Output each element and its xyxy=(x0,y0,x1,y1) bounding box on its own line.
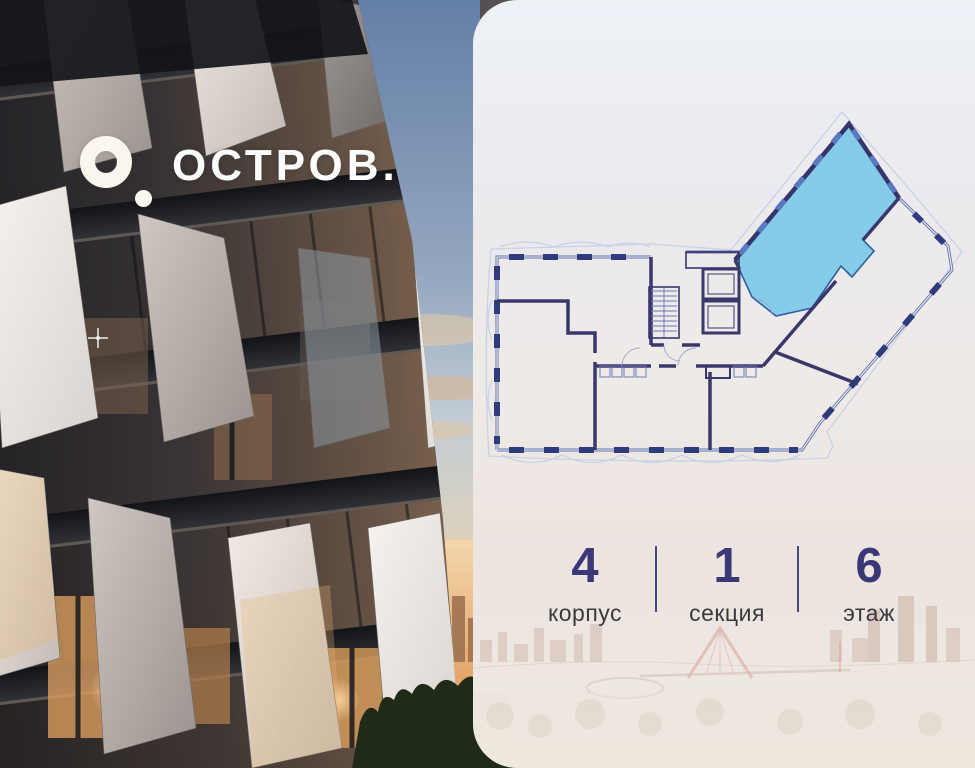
plan-windows xyxy=(497,203,949,450)
apartment-stats: 4 корпус 1 секция 6 этаж xyxy=(515,540,939,640)
stat-building: 4 корпус xyxy=(515,540,655,640)
stat-floor-value: 6 xyxy=(855,540,882,592)
plan-exterior-walls xyxy=(497,198,952,450)
stat-section-label: секция xyxy=(689,600,765,627)
logo-dot-icon xyxy=(135,190,152,207)
page: ОСТРОВ. xyxy=(0,0,975,768)
stat-building-label: корпус xyxy=(548,600,622,627)
stat-floor-label: этаж xyxy=(843,600,895,627)
brand-logo: ОСТРОВ. xyxy=(80,134,440,214)
logo-text: ОСТРОВ. xyxy=(172,142,399,190)
logo-ring-icon xyxy=(80,136,132,188)
selected-apartment[interactable] xyxy=(735,124,899,316)
stat-section-value: 1 xyxy=(713,540,740,592)
stat-building-value: 4 xyxy=(571,540,598,592)
stat-floor: 6 этаж xyxy=(799,540,939,640)
floor-plan xyxy=(473,0,975,768)
info-panel: 4 корпус 1 секция 6 этаж xyxy=(473,0,975,768)
stat-section: 1 секция xyxy=(657,540,797,640)
elevators xyxy=(686,252,739,333)
staircase xyxy=(649,287,679,338)
plan-outer-contour xyxy=(486,112,962,463)
